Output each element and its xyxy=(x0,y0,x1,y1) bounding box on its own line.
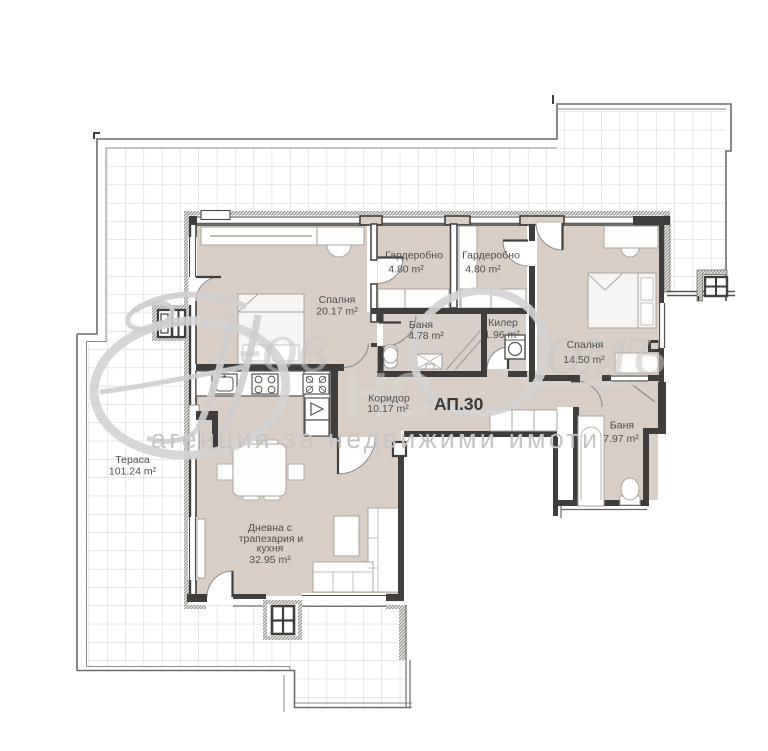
svg-text:101.24 m²: 101.24 m² xyxy=(109,466,157,478)
svg-text:4.80 m²: 4.80 m² xyxy=(465,264,501,276)
svg-text:Баня: Баня xyxy=(610,420,634,432)
svg-text:20.17 m²: 20.17 m² xyxy=(316,306,358,318)
svg-text:Гардеробно: Гардеробно xyxy=(385,250,443,262)
svg-text:омъ: омъ xyxy=(545,308,666,391)
svg-text:АП.30: АП.30 xyxy=(434,394,484,414)
svg-text:Спалня: Спалня xyxy=(567,339,604,351)
svg-text:агенция за недвижими имоти: агенция за недвижими имоти xyxy=(151,424,600,454)
svg-text:-ов: -ов xyxy=(238,307,329,387)
svg-text:10.17 m²: 10.17 m² xyxy=(367,403,409,415)
svg-text:4.78 m²: 4.78 m² xyxy=(408,330,444,342)
svg-text:Гардеробно: Гардеробно xyxy=(462,250,520,262)
svg-text:Спалня: Спалня xyxy=(319,294,356,306)
svg-text:1.96 m²: 1.96 m² xyxy=(484,329,520,341)
svg-text:14.50 m²: 14.50 m² xyxy=(563,354,605,366)
svg-text:Килер: Килер xyxy=(488,317,518,329)
svg-text:кухня: кухня xyxy=(257,543,284,555)
svg-text:Тераса: Тераса xyxy=(115,454,150,466)
svg-text:32.95 m²: 32.95 m² xyxy=(249,554,291,566)
svg-text:4.80 m²: 4.80 m² xyxy=(388,264,424,276)
svg-text:7.97 m²: 7.97 m² xyxy=(603,433,639,445)
